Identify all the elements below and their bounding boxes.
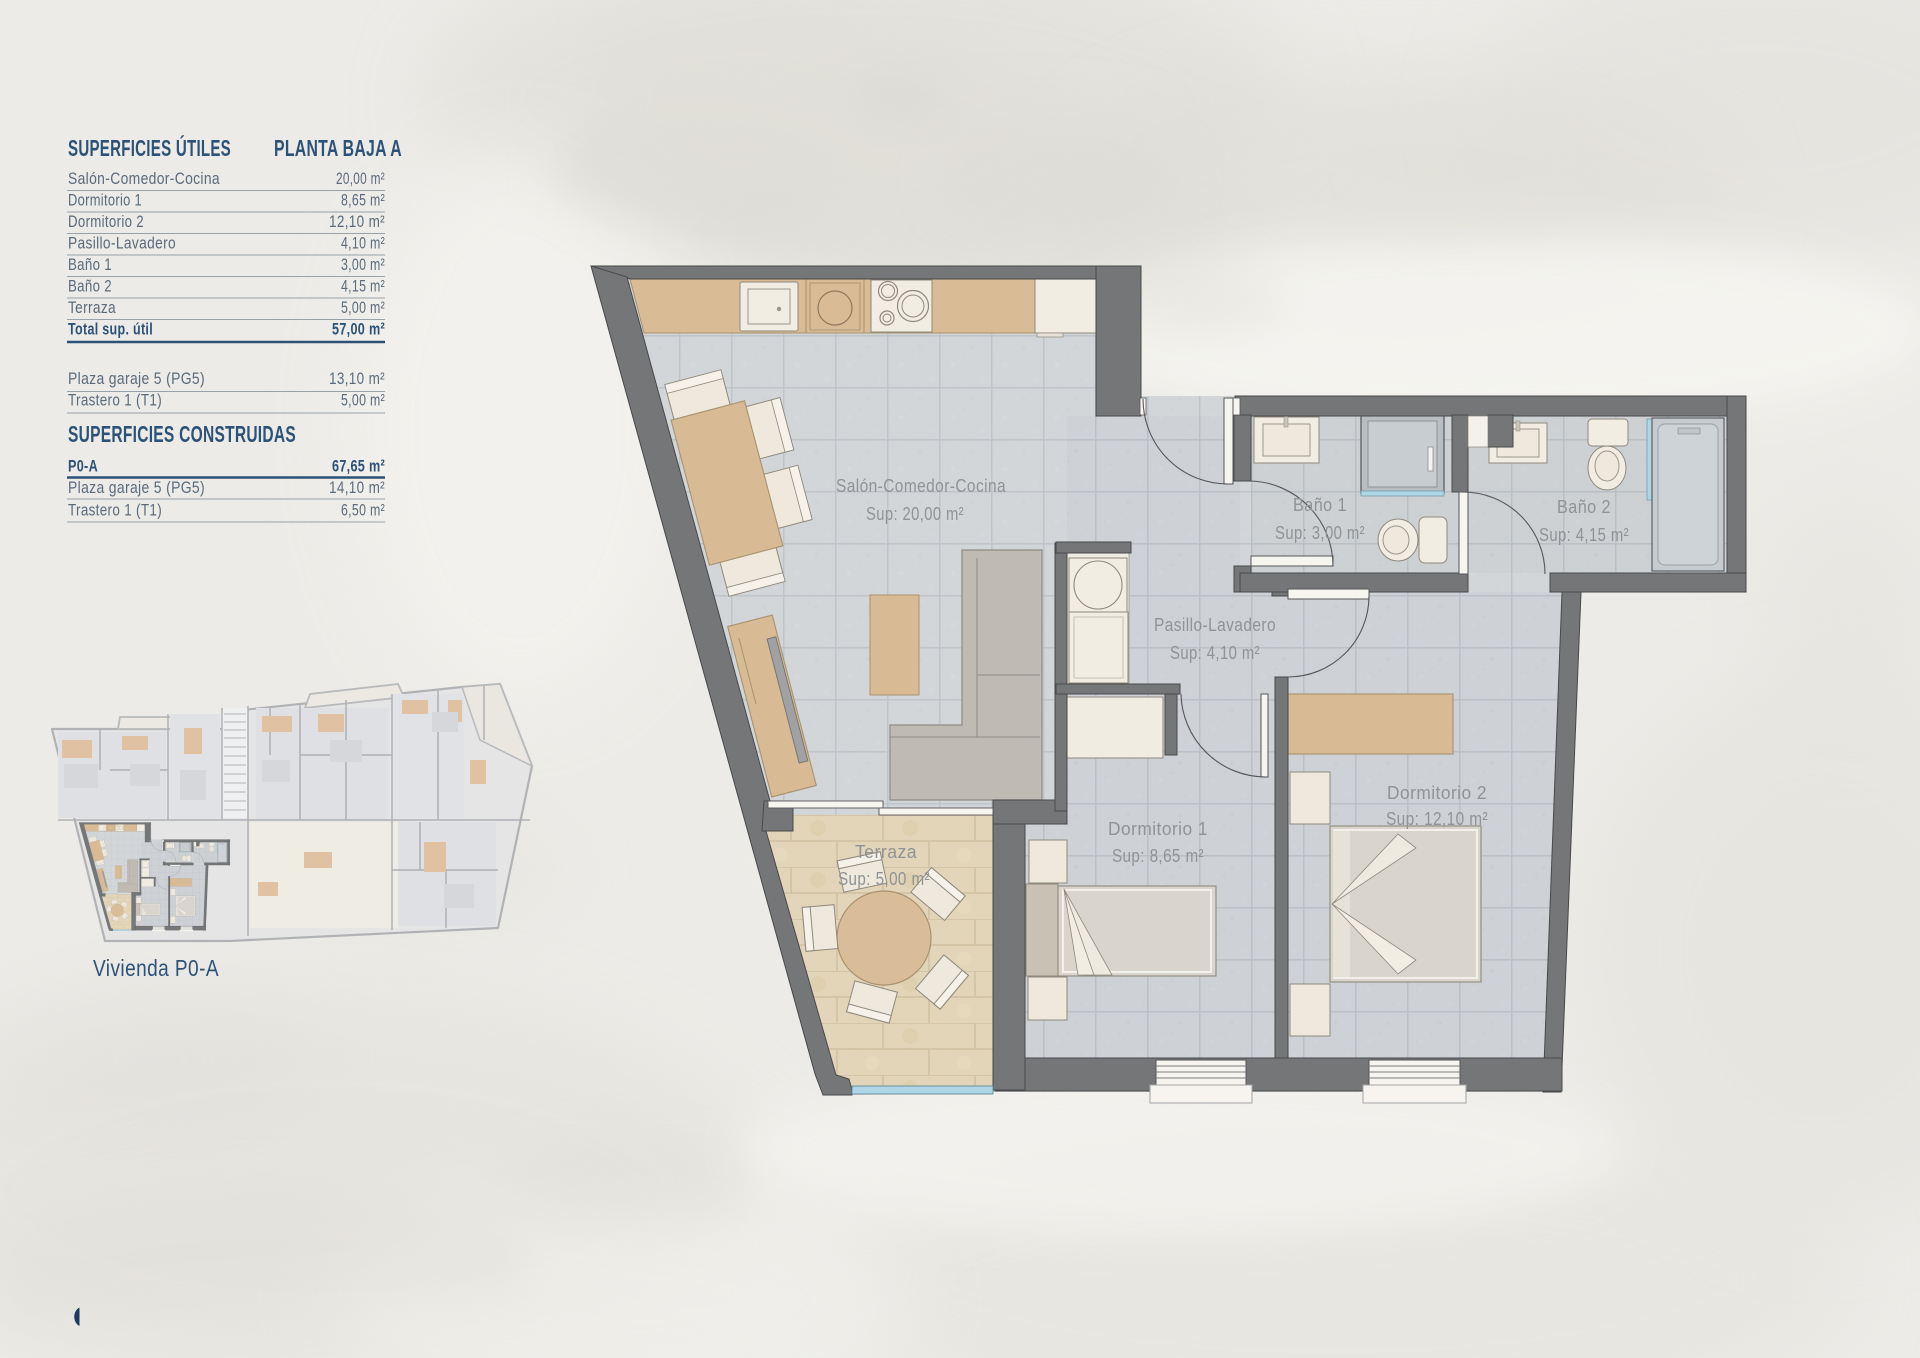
svg-text:SUPERFICIES CONSTRUIDAS: SUPERFICIES CONSTRUIDAS bbox=[68, 421, 296, 447]
svg-text:12,10 m²: 12,10 m² bbox=[329, 213, 385, 231]
svg-text:Sup: 3,00 m²: Sup: 3,00 m² bbox=[1275, 522, 1365, 543]
svg-text:5,00 m²: 5,00 m² bbox=[341, 299, 385, 317]
svg-text:5,00 m²: 5,00 m² bbox=[341, 392, 385, 410]
svg-text:Plaza garaje 5 (PG5): Plaza garaje 5 (PG5) bbox=[68, 370, 205, 388]
svg-text:Baño 2: Baño 2 bbox=[1557, 496, 1611, 517]
svg-text:Baño 1: Baño 1 bbox=[68, 256, 112, 274]
svg-text:Plaza garaje 5 (PG5): Plaza garaje 5 (PG5) bbox=[68, 479, 205, 497]
svg-text:8,65 m²: 8,65 m² bbox=[341, 192, 385, 210]
svg-text:Salón-Comedor-Cocina: Salón-Comedor-Cocina bbox=[68, 170, 220, 188]
svg-text:Sup: 4,15 m²: Sup: 4,15 m² bbox=[1539, 524, 1629, 545]
svg-text:Sup: 8,65 m²: Sup: 8,65 m² bbox=[1112, 845, 1204, 866]
svg-text:4,15 m²: 4,15 m² bbox=[341, 278, 385, 296]
svg-text:PLANTA BAJA A: PLANTA BAJA A bbox=[274, 135, 402, 161]
svg-text:Terraza: Terraza bbox=[68, 299, 116, 317]
svg-text:13,10 m²: 13,10 m² bbox=[329, 370, 385, 388]
svg-text:Vivienda P0-A: Vivienda P0-A bbox=[93, 955, 219, 981]
svg-text:Dormitorio 2: Dormitorio 2 bbox=[68, 213, 144, 231]
svg-text:14,10 m²: 14,10 m² bbox=[329, 479, 385, 497]
svg-text:Salón-Comedor-Cocina: Salón-Comedor-Cocina bbox=[836, 475, 1006, 496]
svg-text:6,50 m²: 6,50 m² bbox=[341, 502, 385, 520]
svg-text:Dormitorio 1: Dormitorio 1 bbox=[68, 192, 142, 210]
svg-text:Terraza: Terraza bbox=[855, 841, 917, 862]
svg-text:P0-A: P0-A bbox=[68, 458, 98, 476]
svg-text:Pasillo-Lavadero: Pasillo-Lavadero bbox=[68, 235, 176, 253]
svg-text:Baño 2: Baño 2 bbox=[68, 278, 112, 296]
svg-text:Pasillo-Lavadero: Pasillo-Lavadero bbox=[1154, 614, 1276, 635]
svg-text:Total sup. útil: Total sup. útil bbox=[68, 321, 153, 339]
svg-text:Dormitorio 2: Dormitorio 2 bbox=[1387, 782, 1487, 803]
svg-text:Baño 1: Baño 1 bbox=[1293, 494, 1347, 515]
svg-text:Sup: 4,10 m²: Sup: 4,10 m² bbox=[1170, 642, 1260, 663]
svg-text:67,65 m²: 67,65 m² bbox=[332, 458, 385, 476]
svg-text:Trastero 1 (T1): Trastero 1 (T1) bbox=[68, 502, 162, 520]
svg-text:Dormitorio 1: Dormitorio 1 bbox=[1108, 818, 1208, 839]
svg-text:Sup: 12,10 m²: Sup: 12,10 m² bbox=[1386, 808, 1488, 829]
svg-text:57,00 m²: 57,00 m² bbox=[332, 321, 385, 339]
svg-text:SUPERFICIES ÚTILES: SUPERFICIES ÚTILES bbox=[68, 134, 231, 161]
svg-text:4,10 m²: 4,10 m² bbox=[341, 235, 385, 253]
svg-text:Sup: 20,00 m²: Sup: 20,00 m² bbox=[866, 503, 964, 524]
svg-text:Trastero 1 (T1): Trastero 1 (T1) bbox=[68, 392, 162, 410]
svg-text:Sup: 5,00 m²: Sup: 5,00 m² bbox=[838, 868, 930, 889]
svg-text:3,00 m²: 3,00 m² bbox=[341, 256, 385, 274]
svg-text:20,00 m²: 20,00 m² bbox=[336, 170, 385, 188]
